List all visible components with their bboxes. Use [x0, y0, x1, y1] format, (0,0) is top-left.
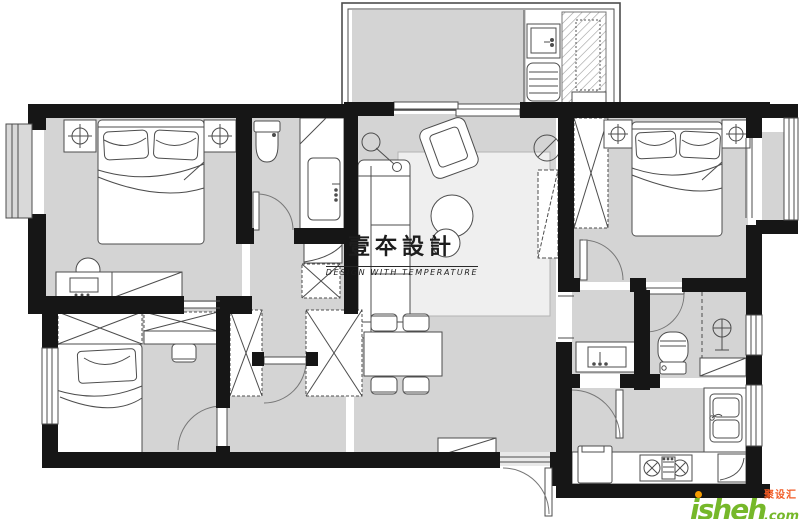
bay-window	[6, 124, 32, 218]
green-wall-hatch	[562, 12, 606, 106]
logo-chinese: 聚设汇	[764, 486, 797, 501]
sofa	[358, 160, 410, 338]
kitchen-sink	[710, 394, 742, 442]
rug	[398, 152, 550, 316]
dining-chair	[371, 377, 397, 394]
dining-table	[364, 332, 442, 376]
desk	[144, 331, 218, 344]
site-logo[interactable]: jsheh 聚设汇 .com	[688, 487, 800, 519]
dresser	[56, 272, 112, 298]
double-bed	[632, 122, 722, 236]
vanity-niche	[576, 342, 636, 372]
hall-wardrobe	[302, 264, 340, 298]
wardrobe	[58, 312, 142, 344]
dining-chair	[371, 314, 397, 331]
low-cabinet	[112, 272, 182, 298]
floor-plan-drawing	[0, 0, 800, 519]
stove	[640, 455, 692, 481]
double-bed	[98, 120, 204, 244]
dining-chair	[403, 377, 429, 394]
wardrobe	[574, 118, 608, 228]
corner-cabinet	[718, 454, 746, 482]
logo-dot-icon	[695, 491, 702, 498]
floor-plan: 壹夲設計 DESIGN WITH TEMPERATURE jsheh 聚设汇 .…	[0, 0, 800, 519]
desk-chair	[172, 344, 196, 362]
toilet	[254, 121, 280, 162]
fridge	[578, 446, 612, 483]
entry-door	[503, 468, 552, 516]
toilet	[658, 332, 688, 374]
shelf-cabinet	[144, 312, 218, 331]
vanity-sink	[576, 342, 636, 372]
dining-chair	[403, 314, 429, 331]
washing-machine	[527, 63, 560, 101]
window	[42, 348, 58, 424]
tv-cabinet	[538, 170, 558, 258]
window	[746, 385, 762, 446]
door-swing	[503, 468, 552, 516]
window	[746, 315, 762, 355]
laundry-sink	[527, 24, 560, 58]
single-bed	[56, 344, 142, 456]
logo-name[interactable]: jsheh	[690, 493, 765, 519]
logo-suffix: .com	[764, 509, 799, 519]
vanity-counter	[300, 118, 344, 230]
hall-cabinet	[304, 242, 342, 263]
bath-cabinet	[700, 358, 746, 376]
